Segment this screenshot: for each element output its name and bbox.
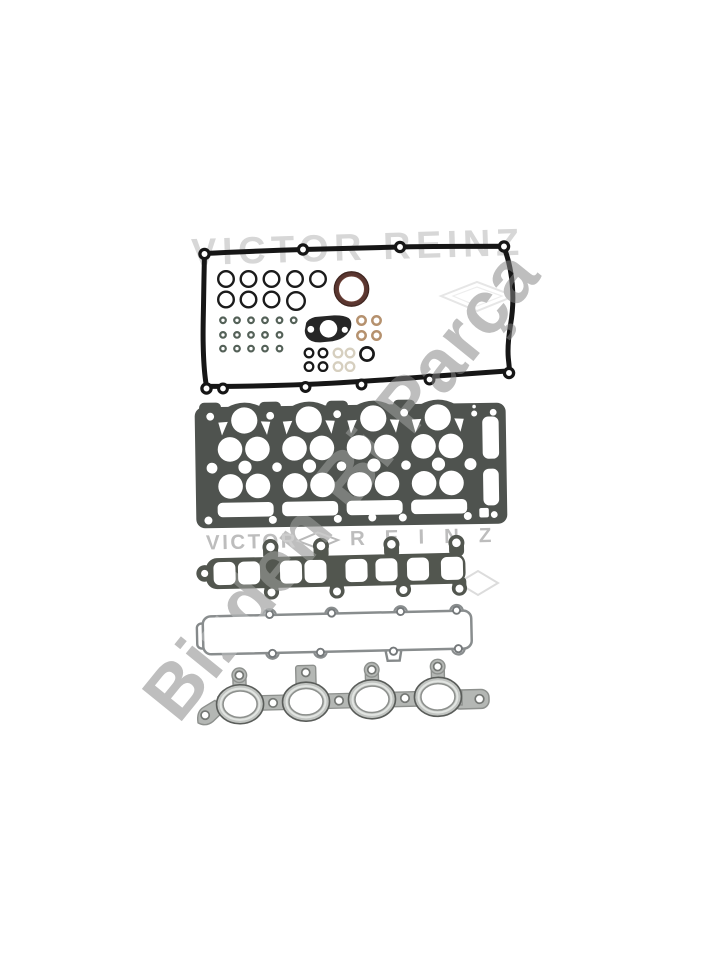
svg-text:REINZ: REINZ	[350, 524, 512, 551]
